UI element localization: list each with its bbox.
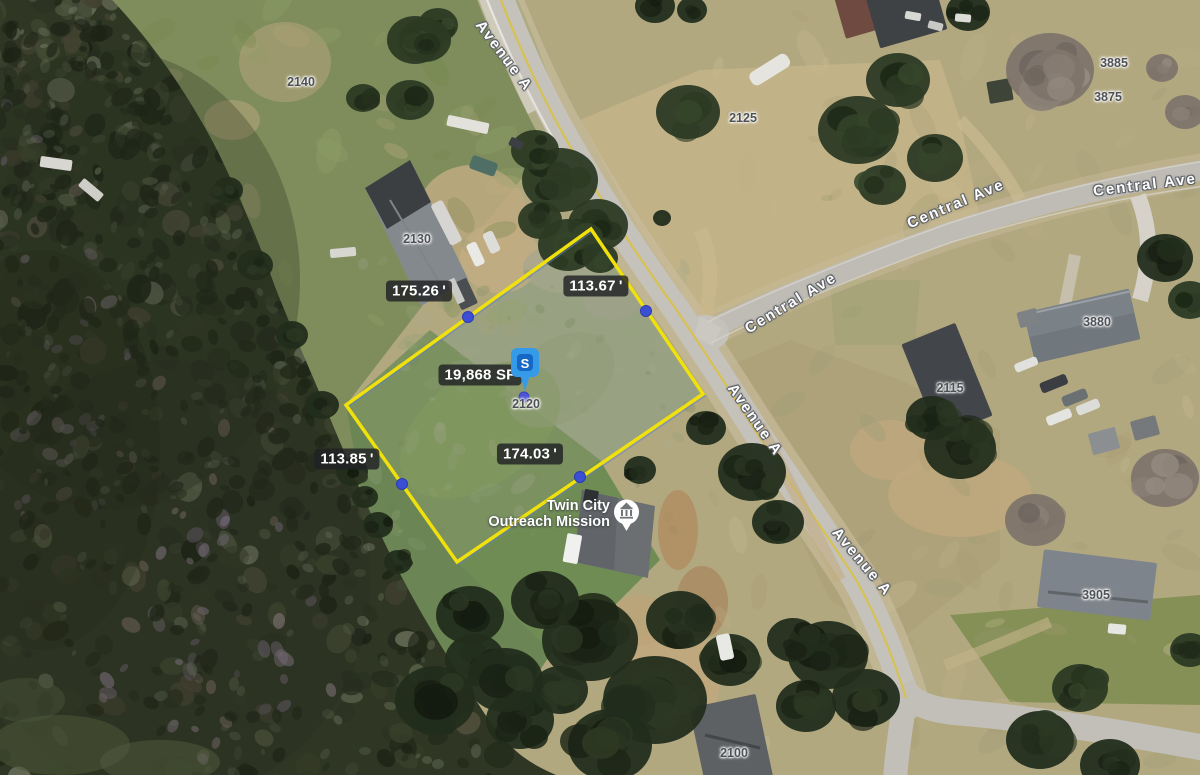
svg-text:S: S — [521, 356, 530, 371]
